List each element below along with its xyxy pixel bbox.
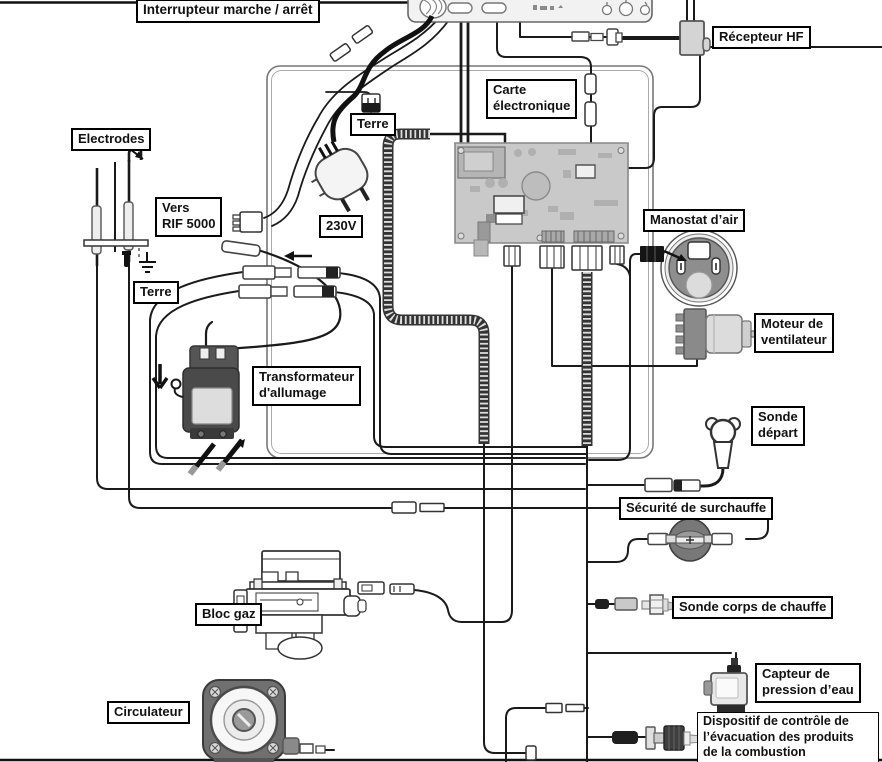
label-carte-electronique: Carte électronique — [486, 79, 577, 119]
label-sonde-corps: Sonde corps de chauffe — [672, 596, 833, 619]
ground-symbol-icon — [139, 252, 156, 272]
label-terre-bas: Terre — [133, 281, 179, 304]
label-bloc-gaz: Bloc gaz — [195, 603, 262, 626]
diagram-artwork — [0, 0, 882, 762]
label-interrupteur: Interrupteur marche / arrêt — [136, 0, 320, 23]
label-recepteur-hf: Récepteur HF — [712, 26, 811, 49]
label-vers-rif5000: Vers RIF 5000 — [155, 197, 222, 237]
label-electrodes: Electrodes — [71, 128, 151, 151]
label-transformateur-allumage: Transformateur d'allumage — [252, 366, 361, 406]
label-230v: 230V — [319, 215, 363, 238]
label-securite-surchauffe: Sécurité de surchauffe — [619, 497, 773, 520]
label-terre-haut: Terre — [350, 113, 396, 136]
heating-body-sensor — [595, 595, 678, 614]
label-moteur-ventilateur: Moteur de ventilateur — [754, 313, 834, 353]
label-dispositif-controle: Dispositif de contrôle de l’évacuation d… — [697, 712, 879, 762]
panel-button-2 — [482, 3, 506, 13]
overheat-safety — [648, 519, 732, 561]
panel-button-1 — [448, 3, 472, 13]
page-border-lines — [0, 3, 882, 761]
label-capteur-pression: Capteur de pression d’eau — [755, 663, 861, 703]
cable-grommet-icon — [420, 0, 446, 18]
wiring-diagram-canvas: Interrupteur marche / arrêt Récepteur HF… — [0, 0, 882, 762]
label-sonde-depart: Sonde départ — [751, 406, 805, 446]
circulator-pump — [203, 680, 325, 762]
rif5000-connector — [233, 212, 262, 232]
pcb-bottom-connectors — [504, 246, 624, 270]
power-plug-icon — [299, 133, 381, 221]
ignition-transformer — [153, 346, 245, 474]
label-manostat-air: Manostat d’air — [643, 209, 745, 232]
spade-connector-pairs — [239, 251, 340, 298]
air-pressure-switch — [640, 230, 737, 306]
flow-sensor — [645, 418, 740, 492]
electronic-board — [455, 143, 628, 270]
label-circulateur: Circulateur — [107, 701, 190, 724]
control-panel — [408, 0, 652, 22]
